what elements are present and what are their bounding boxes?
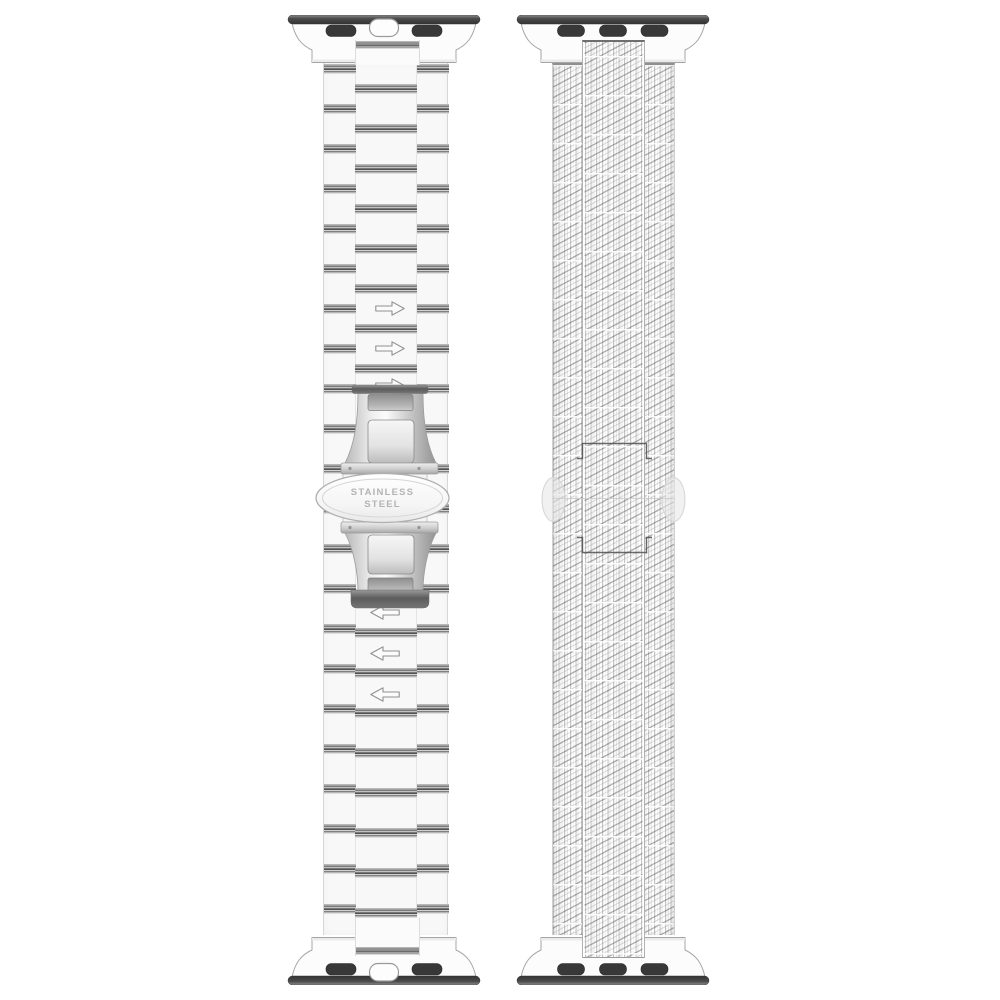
adapter-slot	[558, 964, 585, 976]
link-gap	[417, 184, 449, 194]
link-gap	[355, 204, 417, 214]
center-link-top	[355, 40, 420, 65]
link-gap	[355, 364, 417, 374]
link-gap	[355, 748, 417, 758]
clasp-engraving-line2: STEEL	[364, 499, 401, 510]
link-gap	[417, 64, 449, 74]
link-gap	[355, 84, 417, 94]
link-gap	[417, 264, 449, 274]
adapter-slot	[641, 964, 668, 976]
clasp-screw	[348, 526, 351, 529]
mesh-clasp-side-bulge-right	[662, 478, 685, 522]
clasp-upper-window-small	[368, 395, 413, 411]
link-gap	[417, 864, 449, 874]
link-gap	[324, 624, 356, 634]
clasp-upper-window-large	[368, 420, 414, 463]
clasp-screw	[417, 526, 420, 529]
center-link-bottom	[355, 918, 420, 956]
link-gap	[417, 144, 449, 154]
adapter-slot	[412, 25, 442, 37]
adapter-slot	[412, 964, 442, 976]
link-gap	[324, 904, 356, 914]
link-gap	[417, 704, 449, 714]
clasp-crossbar-bottom	[341, 522, 438, 533]
arrow-right-icon	[375, 301, 405, 316]
arrow-left-icon	[370, 646, 400, 661]
link-gap	[355, 284, 417, 294]
link-gap	[355, 828, 417, 838]
link-gap	[417, 664, 449, 674]
link-gap	[324, 224, 356, 234]
link-gap	[356, 947, 419, 955]
adapter-slot	[600, 25, 627, 37]
link-gap	[417, 224, 449, 234]
link-gap	[355, 628, 417, 638]
link-gap	[324, 864, 356, 874]
link-gap	[324, 664, 356, 674]
link-gap	[324, 184, 356, 194]
link-gap	[355, 668, 417, 678]
link-gap	[355, 868, 417, 878]
product-image-canvas: STAINLESS STEEL	[0, 0, 1000, 1000]
clasp-screw	[348, 467, 351, 470]
adapter-slot	[600, 964, 627, 976]
clasp-oval-plate	[316, 474, 449, 523]
clasp-crossbar-top	[341, 463, 438, 474]
link-gap	[324, 264, 356, 274]
link-gap	[417, 624, 449, 634]
link-gap	[417, 344, 449, 354]
link-gap	[356, 41, 419, 49]
mesh-clasp-side-bulge-left	[542, 478, 565, 522]
link-gap	[355, 244, 417, 254]
link-gap	[324, 144, 356, 154]
butterfly-clasp: STAINLESS STEEL	[305, 378, 460, 618]
adapter-slot	[326, 25, 356, 37]
adapter-slot	[326, 964, 356, 976]
link-gap	[355, 124, 417, 134]
link-gap	[324, 64, 356, 74]
clasp-top-cap	[352, 385, 428, 394]
link-gap	[355, 788, 417, 798]
link-gap	[324, 104, 356, 114]
mesh-clasp-bracket-bottom	[577, 538, 652, 553]
adapter-bar	[517, 976, 709, 985]
link-gap	[355, 708, 417, 718]
link-gap	[324, 704, 356, 714]
clasp-engraving-line1: STAINLESS	[351, 487, 414, 498]
link-gap	[355, 908, 417, 918]
adapter-release-pill	[370, 964, 399, 982]
link-gap	[324, 304, 356, 314]
link-gap	[417, 824, 449, 834]
link-gap	[355, 164, 417, 174]
clasp-bottom-cap	[351, 590, 429, 608]
mesh-clasp-outline	[535, 420, 695, 580]
adapter-bar	[517, 15, 709, 24]
link-gap	[324, 784, 356, 794]
link-gap	[417, 744, 449, 754]
arrow-left-icon	[370, 687, 400, 702]
link-gap	[324, 344, 356, 354]
link-gap	[417, 904, 449, 914]
link-gap	[324, 824, 356, 834]
link-gap	[417, 104, 449, 114]
clasp-lower-window-large	[368, 535, 414, 574]
clasp-screw	[417, 467, 420, 470]
mesh-clasp-bracket-top	[577, 444, 652, 459]
arrow-right-icon	[375, 341, 405, 356]
adapter-slot	[641, 25, 668, 37]
link-gap	[417, 304, 449, 314]
adapter-release-pill	[370, 19, 399, 37]
link-gap	[355, 324, 417, 334]
adapter-slot	[558, 25, 585, 37]
link-gap	[417, 784, 449, 794]
link-gap	[324, 744, 356, 754]
